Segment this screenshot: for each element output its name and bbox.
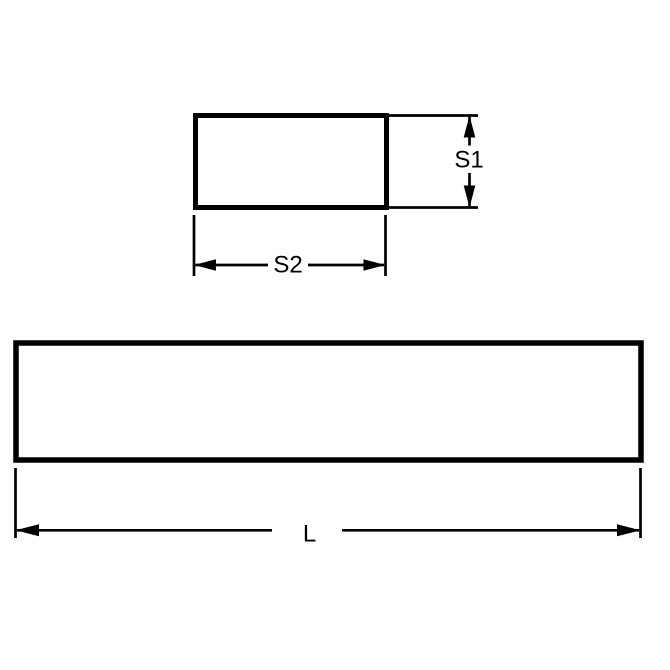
svg-text:L: L <box>303 520 316 547</box>
svg-text:S2: S2 <box>273 252 302 279</box>
svg-text:S1: S1 <box>454 147 483 174</box>
